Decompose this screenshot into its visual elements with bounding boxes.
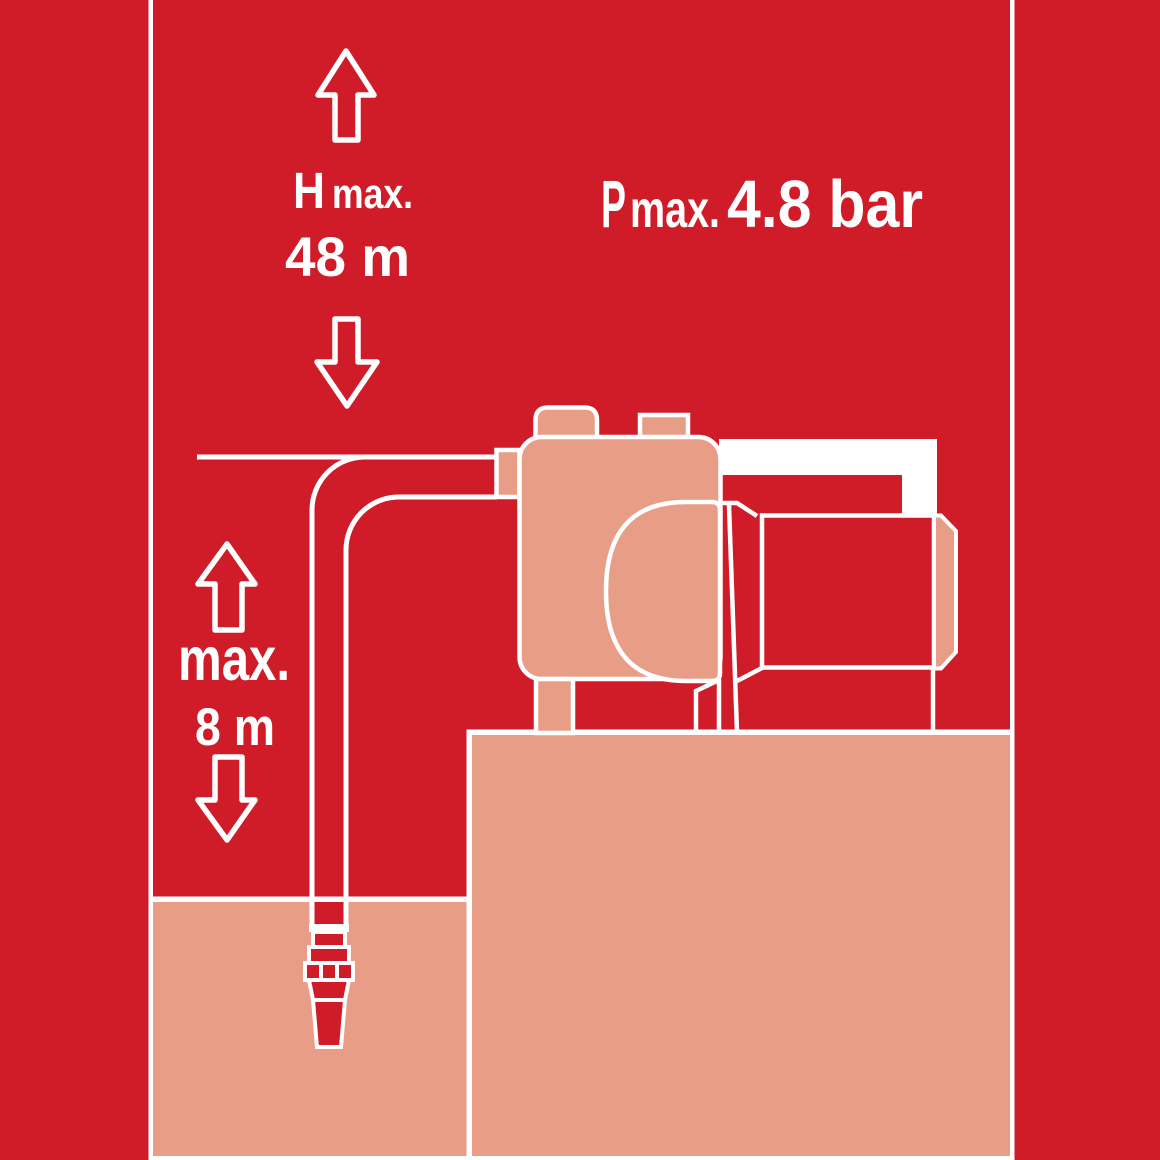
frame-line-right <box>1010 0 1015 1160</box>
filter-segment-a <box>313 932 345 947</box>
waterline <box>151 897 469 903</box>
water-block <box>152 899 468 1160</box>
delivery-head-subscript: max. <box>332 170 413 217</box>
platform-block <box>471 732 1011 1160</box>
diagram-stage: Hmax. 48 m Pmax.4.8 bar max. 8 m <box>0 0 1160 1160</box>
delivery-head-symbol: H <box>293 162 325 219</box>
pressure-value: 4.8 bar <box>727 167 923 242</box>
water-platform-divider-line <box>467 730 473 1160</box>
pump-motor-end-cap <box>934 516 956 669</box>
pressure-subscript: max. <box>630 181 720 239</box>
delivery-head-label: Hmax. <box>293 162 413 219</box>
pump-motor <box>762 516 934 668</box>
pump-inlet-port <box>497 450 520 497</box>
filter-taper <box>309 980 349 1000</box>
suction-value: 8 m <box>195 698 275 757</box>
filter-segment-b <box>309 947 349 963</box>
suction-pipe-interior <box>314 860 344 928</box>
frame-line-left <box>149 0 154 1160</box>
bottom-edge-line <box>151 1156 1013 1160</box>
pump-spec-diagram: Hmax. 48 m Pmax.4.8 bar max. 8 m <box>0 0 1160 1160</box>
filter-segment-c <box>305 963 353 980</box>
delivery-head-value: 48 m <box>285 225 410 288</box>
pump-front-cover <box>606 502 720 681</box>
pump-priming-cap <box>536 408 598 440</box>
suction-label: max. <box>178 625 290 693</box>
pump-leg-front <box>536 679 573 733</box>
pressure-symbol: P <box>601 167 626 242</box>
filter-nozzle <box>313 1000 345 1047</box>
